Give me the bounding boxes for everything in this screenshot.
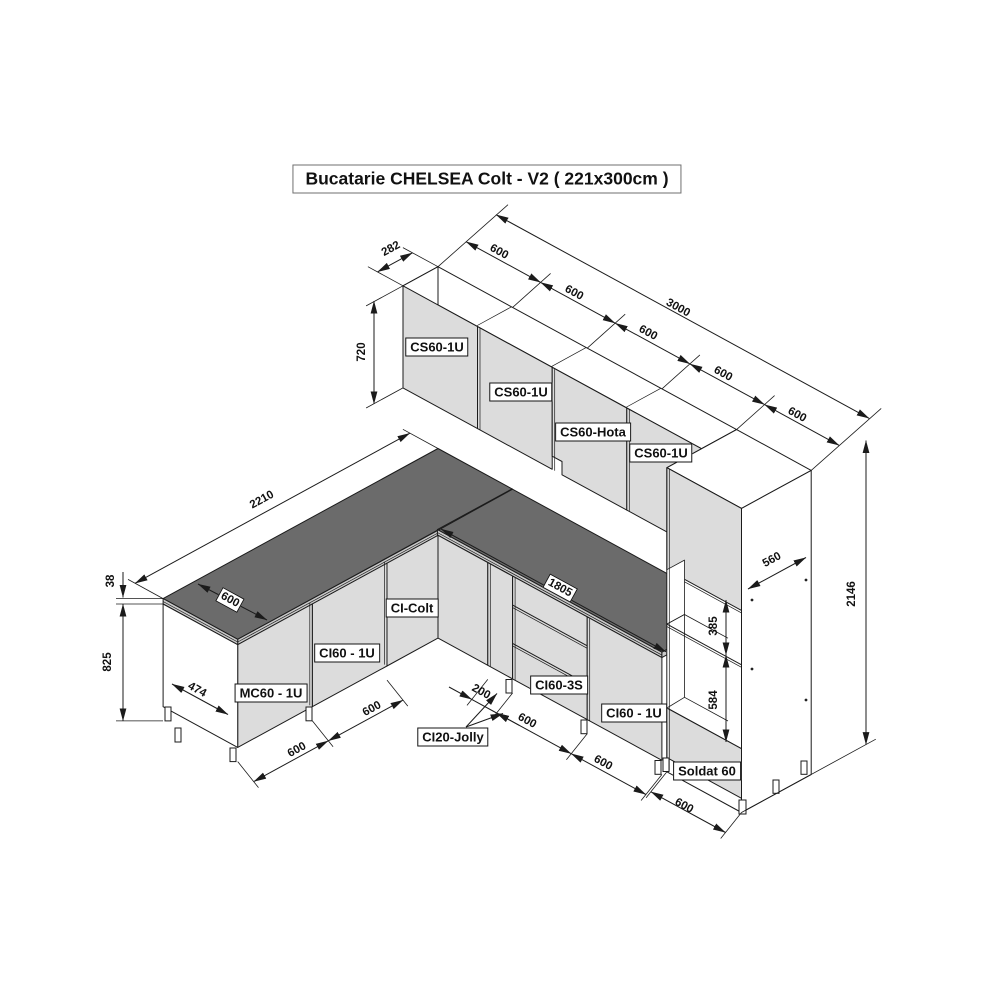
isometric-line-drawing [0, 0, 1000, 1000]
tall-unit [667, 430, 811, 813]
kitchen-dimension-diagram: Bucatarie CHELSEA Colt - V2 ( 221x300cm … [0, 0, 1000, 1000]
